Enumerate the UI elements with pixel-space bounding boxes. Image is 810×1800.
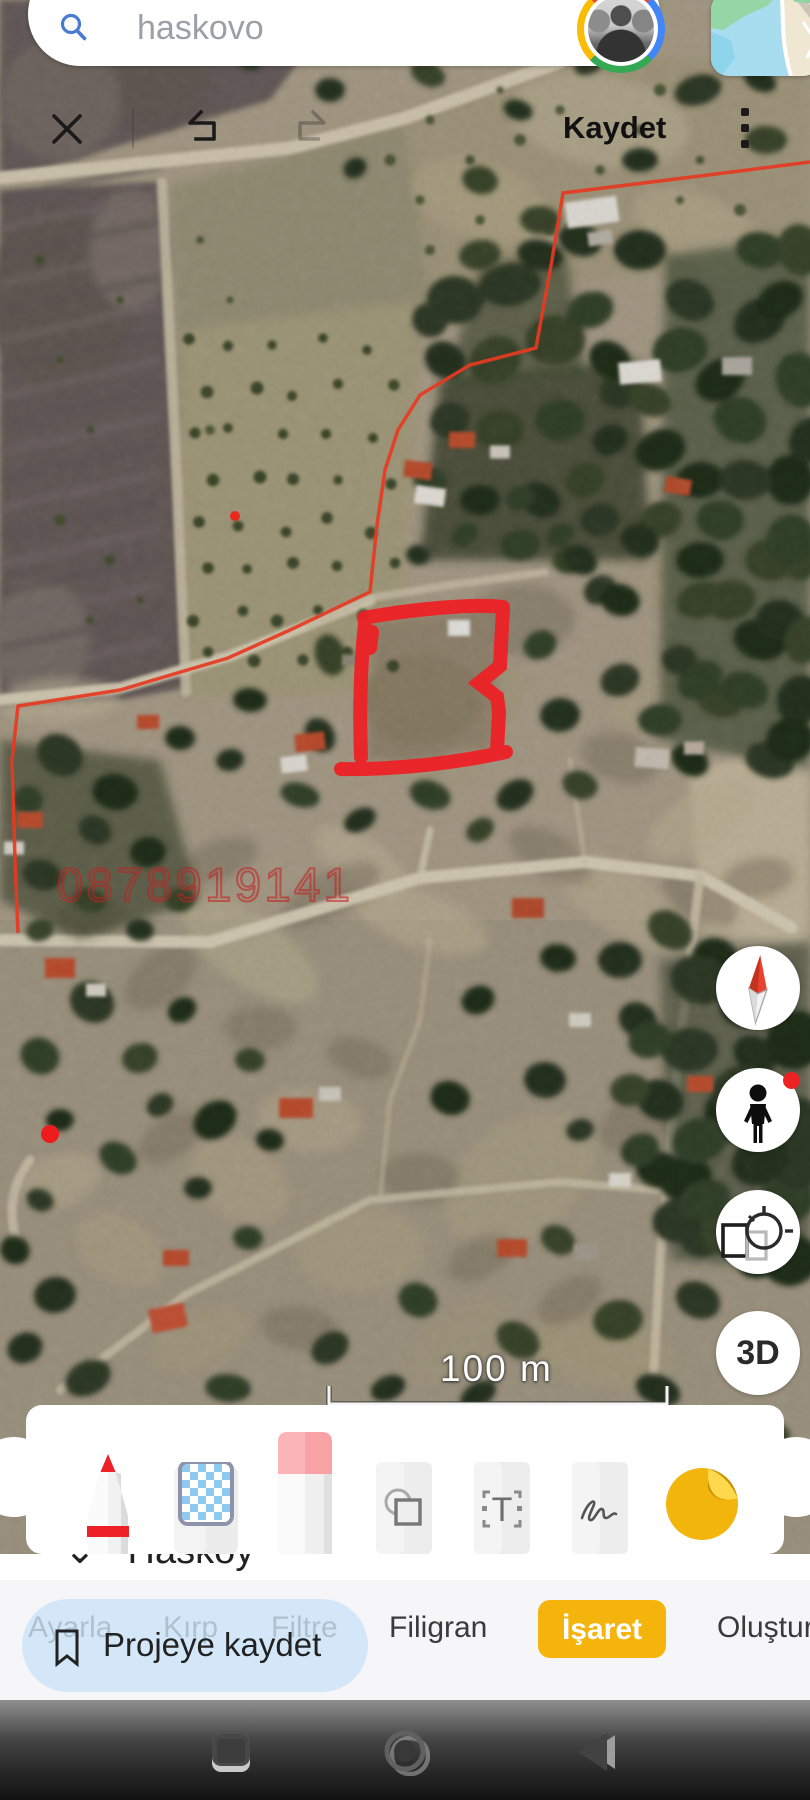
svg-text:T: T <box>492 1491 513 1529</box>
svg-text:0878919141: 0878919141 <box>57 858 353 911</box>
